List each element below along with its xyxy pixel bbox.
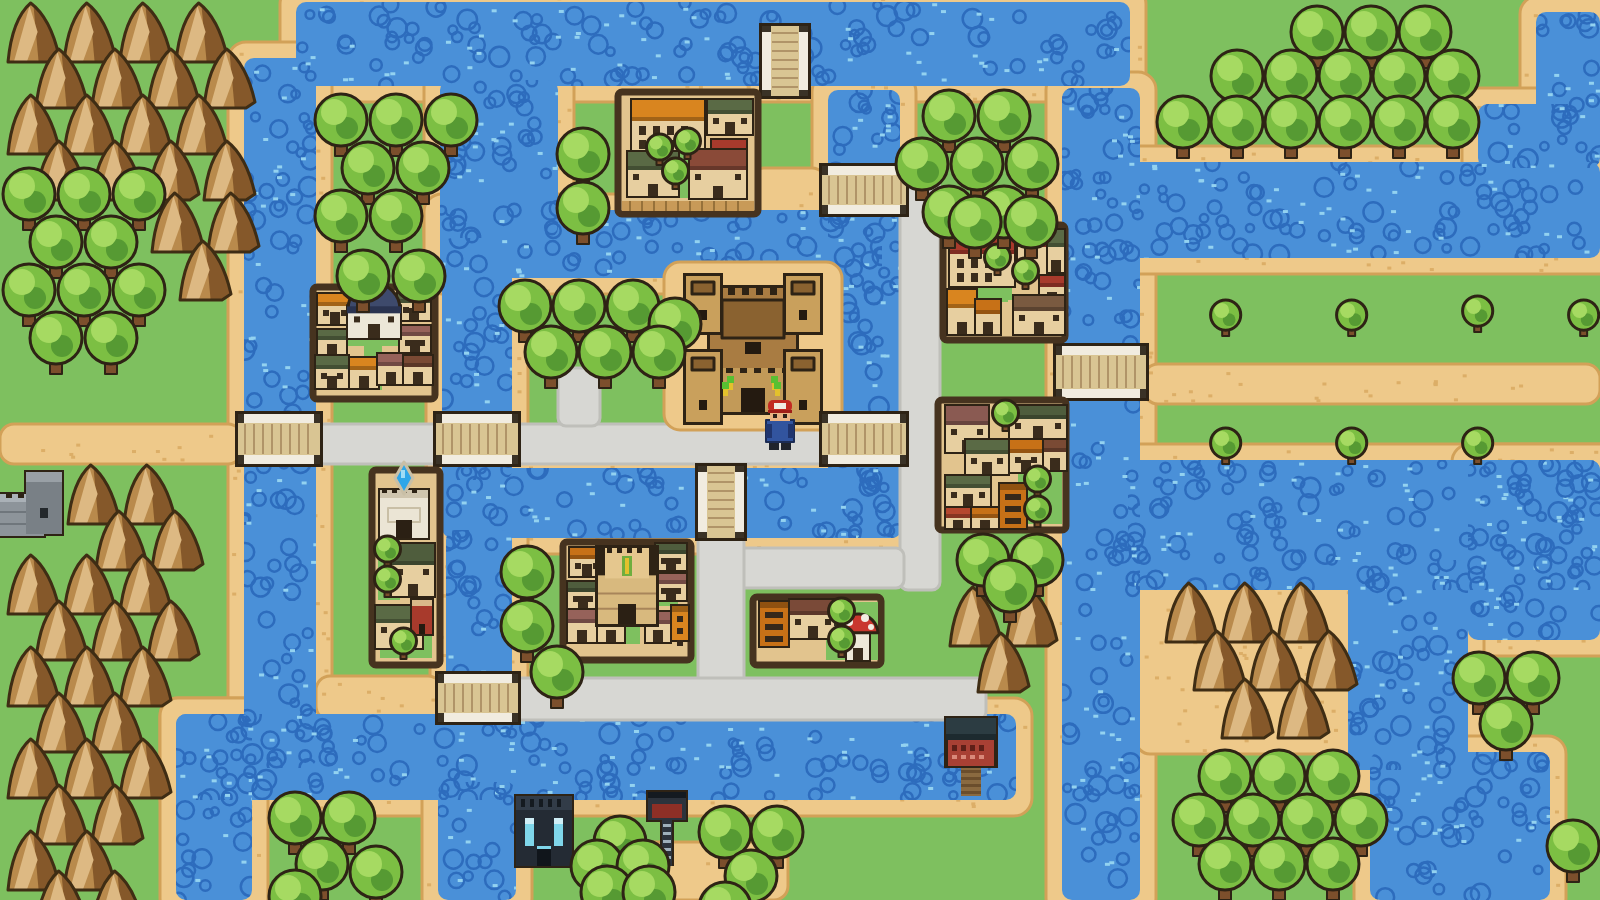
bridge-center-west[interactable] [436,414,518,464]
lab-building[interactable] [516,796,572,866]
bridge-south-center[interactable] [698,466,744,538]
village-mushroom[interactable] [753,597,881,665]
bridge-northeast[interactable] [822,166,906,214]
village-arena[interactable] [563,542,691,660]
village-fountain-tower[interactable] [372,470,440,665]
ruined-wall [0,472,64,536]
castle[interactable] [664,262,842,430]
village-shrine-dome[interactable] [313,287,435,399]
village-east[interactable] [938,400,1066,530]
bridge-southwest[interactable] [438,674,518,722]
watchtower[interactable] [648,792,686,866]
bridge-east[interactable] [1056,346,1146,398]
dock-house[interactable] [946,718,996,776]
bridge-center-east[interactable] [822,414,906,464]
bridge-west[interactable] [238,414,320,464]
bridge-north[interactable] [762,26,808,96]
game-viewport [0,0,1600,900]
village-northeast[interactable] [943,225,1065,340]
village-north[interactable] [618,92,758,214]
